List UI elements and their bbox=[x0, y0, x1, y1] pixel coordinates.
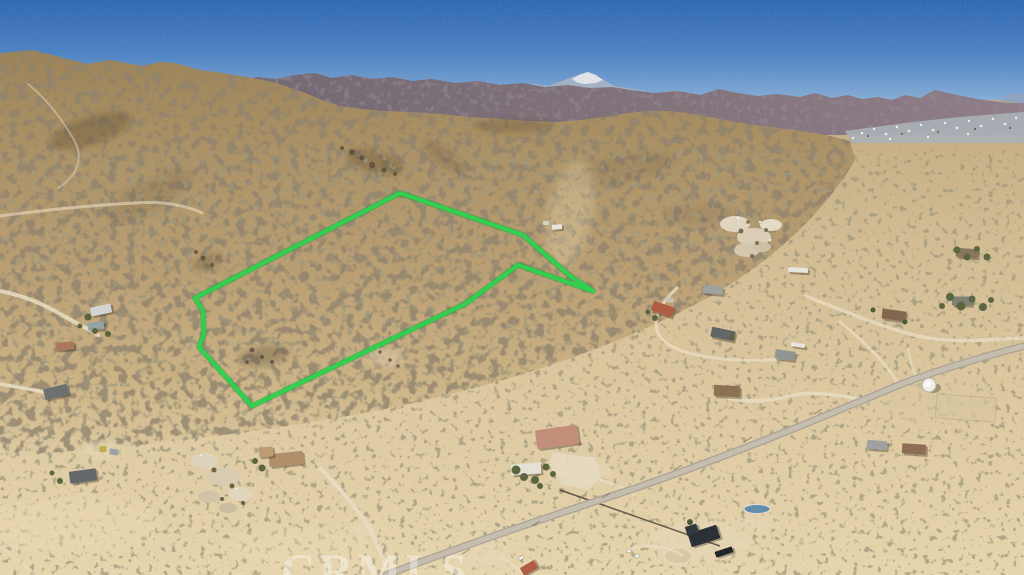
aerial-photo: CRMLS bbox=[0, 0, 1024, 575]
watermark-text: CRMLS bbox=[281, 545, 471, 575]
photo-grain bbox=[0, 0, 1024, 575]
